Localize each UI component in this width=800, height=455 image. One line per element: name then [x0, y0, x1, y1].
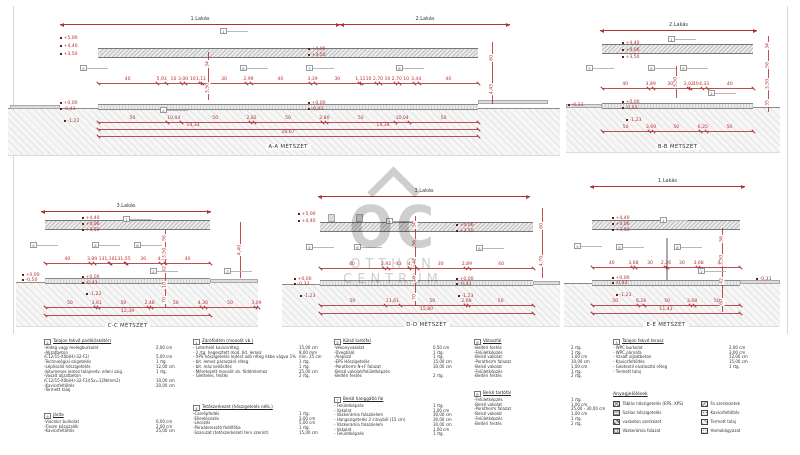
material-legend-item: Homokágyazat	[701, 428, 740, 434]
roof-slab	[320, 222, 533, 232]
span-dimension-line	[600, 30, 757, 31]
legend-block-number: 2	[44, 339, 51, 345]
dimension-label: 40	[498, 262, 504, 267]
dimension-tick-icon	[476, 81, 480, 85]
legend-block: 8Belső tartófal-Felületképzés1 rtg.-Bels…	[474, 391, 607, 426]
unit-span-label: 1.Lakás	[658, 178, 677, 184]
elevation-label: -0,50	[22, 278, 37, 283]
reference-number-box: 8	[476, 245, 483, 251]
dimension-line	[45, 315, 210, 316]
section-title: A-A METSZET	[265, 144, 310, 150]
legend-block-number: 6	[474, 339, 481, 345]
section-title: B-B METSZET	[655, 144, 700, 150]
unit-span-label: 3.Lakás	[116, 203, 135, 209]
floor-slab	[320, 280, 533, 286]
dimension-line	[320, 268, 533, 269]
legend-block-number: 3	[613, 339, 620, 345]
dimension-label: 50	[285, 116, 291, 121]
material-label: Kavicsfeltöltés	[711, 410, 740, 415]
reference-leader-line	[714, 93, 736, 94]
legend-block-title: Zárófödém (monolit vb.)	[202, 339, 253, 344]
reference-leader-line	[36, 245, 58, 246]
ground-hatch	[16, 282, 258, 327]
dimension-label: 30	[438, 262, 444, 267]
elevation-label: -0,43	[60, 107, 75, 112]
floor-slab	[98, 104, 478, 110]
unit-span-label: 3.Lakás	[414, 188, 433, 194]
span-dimension-line	[41, 211, 211, 212]
legend-block: 3Talajon fekvő terasz- WPC burkolat2,00 …	[613, 339, 765, 374]
dimension-line	[320, 313, 533, 314]
elevation-label: -1,22	[64, 119, 79, 124]
section-ee: 1.Lakás403,68302,26303,6840506,26503,685…	[572, 172, 792, 335]
legend-item-value: 2 rtg.	[571, 374, 607, 379]
clay-block-swatch	[613, 428, 620, 434]
dimension-line	[320, 305, 533, 306]
reference-leader-line	[592, 68, 614, 69]
reference-number-box: 6	[92, 242, 99, 248]
vertical-dimension-label: 3,50	[206, 82, 211, 94]
dimension-tick-icon	[531, 266, 535, 270]
vertical-dimension-label: 10	[163, 281, 168, 289]
legend-block-number: 9	[44, 413, 51, 419]
vertical-dimension-label: 42	[413, 257, 418, 265]
reinforced-concrete-swatch	[613, 419, 620, 425]
legend-block-header: 1Zárófödém (monolit vb.)	[193, 339, 335, 345]
sheet-left-edge-line	[13, 6, 14, 334]
reference-leader-line	[166, 110, 188, 111]
arrow-left-icon	[340, 23, 344, 27]
dimension-label: 10	[190, 77, 196, 82]
dimension-label: 50	[498, 299, 504, 304]
legend-item: -Termett talaj	[44, 388, 192, 393]
elevation-label: -1,23	[616, 293, 631, 298]
arrow-left-icon	[590, 185, 594, 189]
legend-block-title: Belső hanggátló fal	[343, 397, 383, 402]
elevation-label: +0,00	[622, 100, 640, 105]
legend-item-value: 2 rtg.	[571, 422, 607, 427]
vertical-dimension-label: 70	[163, 296, 168, 304]
dimension-tick-icon	[164, 81, 168, 85]
legend-item-name: -Beltéri festés	[334, 374, 433, 379]
reference-leader-line	[140, 245, 162, 246]
dimension-label: 50	[673, 125, 679, 130]
vertical-dimension-label: 3,50	[163, 247, 168, 259]
reference-leader-line	[666, 220, 688, 221]
elevation-label: +4,06	[456, 223, 474, 228]
wood-swatch	[701, 401, 708, 407]
legend-block-title: Válaszfal	[483, 339, 501, 344]
reference-number-box: 1	[668, 36, 675, 42]
dimension-label: 50	[612, 299, 618, 304]
reference-number-box: 5	[80, 65, 87, 71]
legend-item-name: -Szaruzat (tetőszerkezeti terv szerint)	[193, 431, 299, 436]
dimension-label: 50	[664, 299, 670, 304]
legend-block-title: Tetőszerkezet (hőszigetelés nélk.)	[202, 405, 273, 410]
elevation-label: -0,43	[82, 281, 97, 286]
span-dimension-line	[318, 196, 530, 197]
elevation-label: +3,50	[82, 228, 100, 233]
vertical-dimension-label: 3,50	[720, 253, 725, 265]
dimension-total-label: 11,43	[659, 307, 672, 312]
dimension-tick-icon	[43, 261, 47, 265]
vertical-dimension-label: 70	[413, 293, 418, 301]
dimension-line	[602, 88, 753, 89]
reference-number-box: 5	[586, 65, 593, 71]
arrow-left-icon	[60, 23, 64, 27]
dimension-tick-icon	[651, 86, 655, 90]
dimension-label: 40	[609, 261, 615, 266]
material-label: Fa szerkezetek	[711, 401, 741, 406]
legend-block-title: Talajon fekvő terasz	[622, 339, 664, 344]
vertical-dimension-label: 4,70	[540, 254, 545, 266]
arrow-left-icon	[600, 29, 604, 33]
dimension-label: 50	[429, 299, 435, 304]
elevation-label: +5,00	[298, 212, 316, 217]
elevation-label: -0,33	[568, 103, 583, 108]
dimension-tick-icon	[738, 265, 742, 269]
reference-leader-line	[226, 31, 248, 32]
legend-item: - Felületképzés1 rtg.	[334, 432, 469, 437]
elevation-label: -0,43	[612, 281, 627, 286]
reference-number-box: 1	[660, 217, 667, 223]
dimension-label: 30	[679, 261, 685, 266]
dimension-tick-icon	[318, 266, 322, 270]
reference-leader-line	[482, 248, 504, 249]
dimension-label: 30	[334, 77, 340, 82]
dimension-tick-icon	[751, 86, 755, 90]
vertical-dimension-label: 10	[413, 275, 418, 283]
elevation-label: -1,23	[86, 292, 101, 297]
reference-number-box: 2	[698, 268, 705, 274]
legend-block-header: 2Talajon fekvő padló(lakótér)	[44, 339, 192, 345]
dimension-label: 4,33	[699, 82, 709, 87]
section-title: D-D METSZET	[403, 322, 449, 328]
elevation-label: +5,00	[60, 36, 78, 41]
reference-leader-line	[230, 271, 252, 272]
reference-number-box: 5	[574, 243, 581, 249]
elevation-label: +0,00	[308, 101, 326, 106]
dimension-line	[98, 122, 478, 123]
dimension-label: 10	[384, 77, 390, 82]
elevation-label: -1,23	[458, 294, 473, 299]
dimension-label: 10	[366, 77, 372, 82]
legend-block-header: 7Belső hanggátló fal	[334, 397, 469, 403]
reference-number-box: 8	[134, 242, 141, 248]
legend-block-header: 4Tetőszerkezet (hőszigetelés nélk.)	[193, 405, 335, 411]
legend-item-name: - Termett talaj	[613, 370, 729, 375]
dimension-tick-icon	[378, 81, 382, 85]
vertical-dimension-label: 34	[206, 60, 211, 68]
dimension-total-label: 14,34	[376, 123, 389, 128]
dimension-line	[592, 313, 740, 314]
dimension-label: 11,61	[386, 299, 399, 304]
roof-parapet	[328, 214, 335, 222]
legend-block-title: Belső tartófal	[483, 391, 511, 396]
legend-block-header: 6Válaszfal	[474, 339, 607, 345]
material-legend-item: Termett talaj	[701, 419, 736, 425]
arrow-right-icon	[207, 210, 211, 214]
elevation-label: -1,23	[300, 294, 315, 299]
dimension-line	[592, 305, 740, 306]
dimension-label: 40	[125, 77, 131, 82]
legend-block-title: Talajon fekvő padló(lakótér)	[53, 339, 111, 344]
reference-number-box: 2	[150, 268, 157, 274]
legend-item-name: -Termett talaj	[44, 388, 156, 393]
legend-block-title: Járda	[53, 413, 64, 418]
vertical-dimension-label: 34	[413, 221, 418, 229]
vertical-dimension-label: 60	[720, 298, 725, 306]
elevation-label: -0,43	[622, 106, 637, 111]
section-bb: 2.Lakás403,89302,02104,3340503,69506,255…	[572, 8, 792, 160]
dimension-label: 30	[667, 82, 673, 87]
reference-leader-line	[246, 68, 268, 69]
elevation-label: +0,00	[82, 275, 100, 280]
reference-number-box: 3	[224, 268, 231, 274]
dimension-label: 3,44	[411, 77, 421, 82]
vertical-dimension-line	[542, 208, 543, 278]
dimension-label: 50	[441, 116, 447, 121]
elevation-label: +0,00	[60, 101, 78, 106]
dimension-label: 6,26	[636, 299, 646, 304]
vertical-dimension-label: 42	[720, 277, 725, 285]
dimension-line	[602, 131, 753, 132]
dimension-total-label: 14,33	[186, 123, 199, 128]
unit-span-label: 2.Lakás	[669, 22, 688, 28]
dimension-label: 50	[726, 125, 732, 130]
dimension-total-label: 12,39	[121, 309, 134, 314]
legend-item: -Beltéri festés2 rtg.	[334, 374, 469, 379]
dimension-label: 10	[403, 77, 409, 82]
gravel-swatch	[701, 410, 708, 416]
legend-block-header: 3Talajon fekvő terasz	[613, 339, 765, 345]
vertical-dimension-label: 3,50	[674, 76, 679, 88]
arrow-right-icon	[526, 195, 530, 199]
material-label: Szálas hőszigetelés	[623, 410, 662, 415]
reference-leader-line	[156, 271, 178, 272]
reference-number-box: 8	[240, 65, 247, 71]
dimension-tick-icon	[468, 266, 472, 270]
reference-number-box: 6	[680, 65, 687, 71]
vertical-dimension-label: 42	[163, 265, 168, 273]
material-legend-item: Szálas hőszigetelés	[613, 410, 661, 416]
elevation-label: +3,50	[308, 53, 326, 58]
reference-leader-line	[98, 245, 120, 246]
legend-block-header: 5Külső tartófal	[334, 339, 469, 345]
reference-number-box: 8	[648, 65, 655, 71]
material-legend-item: vasbeton szerkezet	[613, 419, 661, 425]
reference-number-box: 6	[354, 244, 361, 250]
material-legend-item: Kavicsfeltöltés	[701, 410, 740, 416]
elevation-label: +4,40	[82, 216, 100, 221]
legend-item-value: 1 rtg.	[433, 432, 469, 437]
legend-block: 1Zárófödém (monolit vb.)- Leterhelő kavi…	[193, 339, 335, 379]
dimension-tick-icon	[408, 266, 412, 270]
reference-leader-line	[402, 68, 424, 69]
material-label: Termett talaj	[711, 419, 736, 424]
elevation-label: +4,06	[308, 47, 326, 52]
architectural-drawing-sheet: 1.Lakás2.Lakás405,93103,00101,11302,9940…	[0, 0, 800, 455]
terrace-slab	[210, 279, 258, 283]
elevation-label: +4,40	[298, 219, 316, 224]
section-dd: 3.Lakás402,92134,77302,89405011,61502,69…	[282, 178, 560, 335]
legend-item: -Beltéri festés2 rtg.	[474, 422, 607, 427]
elevation-label: +4,40	[622, 41, 640, 46]
material-legend-item: Fa szerkezetek	[701, 401, 740, 407]
legend-item-name: -Kavicsfeltöltés	[44, 429, 156, 434]
materials-legend-title: Anyagjelölések	[613, 392, 648, 397]
vertical-dimension-label: 34	[766, 42, 771, 50]
span-dimension-line	[340, 24, 510, 25]
elevation-label: +3,50	[456, 229, 474, 234]
roof-slab	[98, 48, 478, 58]
dimension-tick-icon	[208, 261, 212, 265]
arrow-right-icon	[753, 29, 757, 33]
dimension-total-label: 15,80	[420, 307, 433, 312]
dimension-tick-icon	[600, 86, 604, 90]
reference-leader-line	[622, 247, 644, 248]
vertical-dimension-label: 35	[766, 99, 771, 107]
legend-block-number: 4	[193, 405, 200, 411]
vertical-dimension-label: 56	[163, 234, 168, 242]
legend-item: - Glettelés, festés2 rtg.	[193, 374, 335, 379]
legend-block-header: 9Járda	[44, 413, 192, 419]
section-title: E-E METSZET	[644, 322, 689, 328]
elevation-label: +3,50	[60, 52, 78, 57]
dimension-tick-icon	[313, 81, 317, 85]
legend-item: -Kavicsfeltöltés25,00 cm	[44, 429, 192, 434]
legend-item-name: -Beltéri festés	[474, 422, 571, 427]
dimension-label: 40	[277, 77, 283, 82]
dimension-label: 30	[140, 257, 146, 262]
elevation-label: +4,06	[622, 48, 640, 53]
elevation-label: -0,43	[456, 282, 471, 287]
reference-number-box: 1	[386, 218, 393, 224]
reference-number-box: 5	[306, 244, 313, 250]
elevation-label: -1,23	[626, 118, 641, 123]
vertical-dimension-label: 56	[413, 239, 418, 247]
dimension-label: 50	[67, 301, 73, 306]
span-dimension-line	[60, 24, 340, 25]
reference-number-box: 1	[220, 28, 227, 34]
material-legend-item: Táblás hőszigetelés (EPS, XPS)	[613, 401, 683, 407]
reference-number-box: 8	[674, 244, 681, 250]
reference-leader-line	[580, 246, 602, 247]
dimension-label: 40	[65, 257, 71, 262]
vertical-dimension-label: 56	[766, 61, 771, 69]
page: { "page": { "background": "#ffffff", "di…	[0, 0, 800, 455]
legend-item-value	[729, 370, 765, 375]
dimension-label: 13	[396, 262, 402, 267]
reference-leader-line	[704, 271, 726, 272]
legend-item-value	[156, 388, 192, 393]
elevation-label: +3,50	[622, 55, 640, 60]
legend-item: -Szaruzat (tetőszerkezeti terv szerint)1…	[193, 431, 335, 436]
legend-block-title: Külső tartófal	[343, 339, 371, 344]
legend-item-value: 25,00 cm	[156, 429, 192, 434]
dimension-label: 50	[349, 299, 355, 304]
material-label: Homokágyazat	[711, 428, 741, 433]
dimension-tick-icon	[590, 265, 594, 269]
legend-item-name: - Glettelés, festés	[193, 374, 299, 379]
dimension-total-label: 28,67	[281, 130, 294, 135]
dimension-label: 10	[693, 82, 699, 87]
legend-block: 9Járda-Viacolor burkolat6,00 cm-Finom kő…	[44, 413, 192, 434]
sand-swatch	[701, 428, 708, 434]
reference-leader-line	[674, 39, 696, 40]
fiber-insulation-swatch	[613, 410, 620, 416]
legend-block: 4Tetőszerkezet (hőszigetelés nélk.)-Cser…	[193, 405, 335, 436]
dimension-label: 50	[623, 125, 629, 130]
vertical-dimension-label: 3,50	[766, 77, 771, 89]
legend-block: 5Külső tartófal-Vékonyvakolat0,50 cm-Üve…	[334, 339, 469, 379]
elevation-label: -0,33	[294, 282, 309, 287]
reference-leader-line	[686, 68, 708, 69]
legend-item-name: - Felületképzés	[334, 432, 433, 437]
legend-item-name: -Beltéri festés	[474, 374, 571, 379]
section-aa: 1.Lakás2.Lakás405,93103,00101,11302,9940…	[40, 8, 568, 158]
unit-span-label: 2.Lakás	[415, 16, 434, 22]
legend-item: -Beltéri festés2 rtg.	[474, 374, 607, 379]
vertical-dimension-label: 60	[540, 222, 545, 230]
reference-leader-line	[392, 221, 414, 222]
dimension-line	[98, 136, 478, 137]
dimension-label: 40	[622, 82, 628, 87]
legend-item-value: 15,00 cm	[299, 431, 335, 436]
legend-block-number: 7	[334, 397, 341, 403]
elevation-label: +4,06	[612, 222, 630, 227]
arrow-right-icon	[741, 185, 745, 189]
elevation-label: +4,40	[612, 216, 630, 221]
reference-number-box: 2	[160, 107, 167, 113]
reference-number-box: 1	[123, 216, 130, 222]
reference-leader-line	[360, 247, 382, 248]
legend-block: 2Talajon fekvő padló(lakótér)-Hideg vagy…	[44, 339, 192, 393]
reference-number-box: 6	[616, 244, 623, 250]
reference-leader-line	[312, 68, 334, 69]
legend-block: 7Belső hanggátló fal- Felületképzés1 rtg…	[334, 397, 469, 437]
legend-block-header: 8Belső tartófal	[474, 391, 607, 397]
section-cc: 3.Lakás403,89131,10131,55304,5040503,615…	[18, 178, 270, 335]
material-label: Vázkerámia falazat	[623, 428, 661, 433]
soil-swatch	[701, 419, 708, 425]
section-title: C-C METSZET	[105, 323, 151, 329]
elevation-label: +4,40	[60, 44, 78, 49]
reference-leader-line	[654, 68, 676, 69]
elevation-label: +3,50	[612, 228, 630, 233]
terrace-slab	[478, 100, 548, 104]
legend-block-number: 5	[334, 339, 341, 345]
dimension-label: 50	[358, 116, 364, 121]
dimension-label: 40	[727, 82, 733, 87]
terrace-slab	[10, 105, 60, 109]
elevation-label: -0,43	[308, 107, 323, 112]
vertical-dimension-label: 4,40	[238, 244, 243, 256]
legend-item-value: 2 rtg.	[433, 374, 469, 379]
material-label: Táblás hőszigetelés (EPS, XPS)	[623, 401, 684, 406]
dimension-tick-icon	[108, 261, 112, 265]
dimension-label: 40	[349, 262, 355, 267]
dimension-tick-icon	[96, 81, 100, 85]
reference-number-box: 5	[30, 242, 37, 248]
dimension-label: 40	[445, 77, 451, 82]
glazed-door	[666, 238, 668, 280]
dimension-label: 50	[130, 116, 136, 121]
material-legend-item: Vázkerámia falazat	[613, 428, 660, 434]
span-dimension-line	[590, 186, 745, 187]
dimension-label: 50	[212, 116, 218, 121]
roof-parapet	[356, 214, 363, 222]
